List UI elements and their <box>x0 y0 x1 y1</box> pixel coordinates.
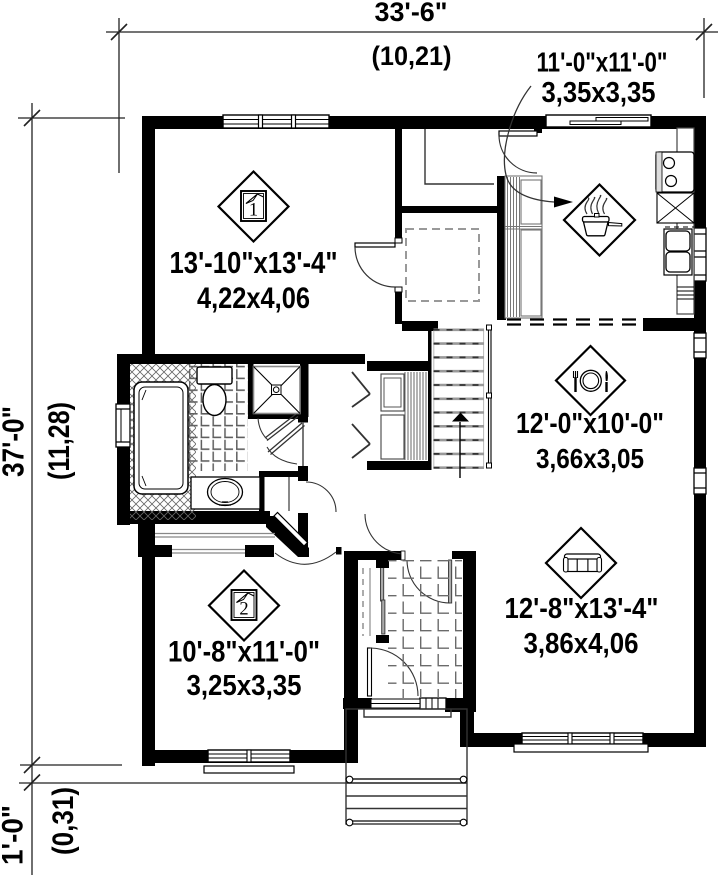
svg-text:3,25x3,35: 3,25x3,35 <box>187 670 302 702</box>
svg-text:3,86x4,06: 3,86x4,06 <box>524 628 639 660</box>
svg-text:1: 1 <box>249 201 258 221</box>
svg-text:3,66x3,05: 3,66x3,05 <box>536 443 644 474</box>
svg-text:(0,31): (0,31) <box>47 787 80 855</box>
svg-text:2: 2 <box>239 600 248 620</box>
svg-text:13'-10"x13'-4": 13'-10"x13'-4" <box>170 245 338 280</box>
svg-text:12'-8"x13'-4": 12'-8"x13'-4" <box>505 593 659 625</box>
svg-text:4,22x4,06: 4,22x4,06 <box>197 282 310 315</box>
svg-text:10'-8"x11'-0": 10'-8"x11'-0" <box>168 636 320 669</box>
svg-text:12'-0"x10'-0": 12'-0"x10'-0" <box>516 408 664 440</box>
svg-text:(11,28): (11,28) <box>43 402 76 480</box>
svg-text:37'-0": 37'-0" <box>0 406 31 477</box>
svg-text:33'-6": 33'-6" <box>375 0 448 27</box>
svg-text:(10,21): (10,21) <box>372 41 452 71</box>
svg-text:11'-0"x11'-0": 11'-0"x11'-0" <box>537 47 668 78</box>
svg-text:3,35x3,35: 3,35x3,35 <box>542 77 656 109</box>
svg-text:1'-0": 1'-0" <box>0 805 30 865</box>
